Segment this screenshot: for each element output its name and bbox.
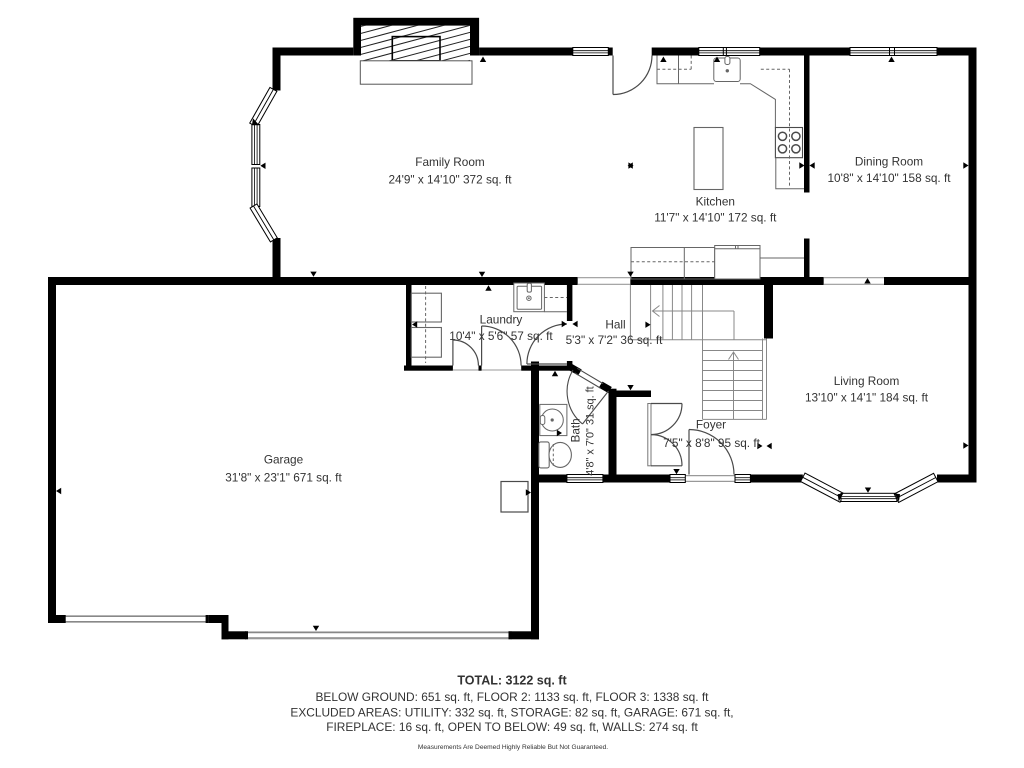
svg-text:5'3" x 7'2" 36 sq. ft: 5'3" x 7'2" 36 sq. ft [566,333,664,347]
svg-text:Hall: Hall [605,318,625,332]
svg-text:Foyer: Foyer [696,418,726,432]
svg-text:13'10" x 14'1" 184 sq. ft: 13'10" x 14'1" 184 sq. ft [805,391,929,405]
svg-text:10'8" x 14'10" 158 sq. ft: 10'8" x 14'10" 158 sq. ft [827,171,951,185]
svg-text:Measurements Are Deemed Highly: Measurements Are Deemed Highly Reliable … [418,744,608,751]
svg-text:24'9" x 14'10" 372 sq. ft: 24'9" x 14'10" 372 sq. ft [388,173,512,187]
svg-text:11'7" x 14'10" 172 sq. ft: 11'7" x 14'10" 172 sq. ft [654,211,777,225]
svg-text:Laundry: Laundry [480,313,523,327]
svg-text:EXCLUDED AREAS: UTILITY: 332 s: EXCLUDED AREAS: UTILITY: 332 sq. ft, STO… [290,705,733,719]
svg-text:TOTAL: 3122 sq. ft: TOTAL: 3122 sq. ft [457,674,567,688]
svg-text:31'8" x 23'1" 671 sq. ft: 31'8" x 23'1" 671 sq. ft [225,470,342,484]
svg-text:Dining Room: Dining Room [855,155,923,169]
svg-text:Kitchen: Kitchen [696,195,735,209]
svg-text:7'5" x 8'8" 95 sq. ft: 7'5" x 8'8" 95 sq. ft [663,436,761,450]
svg-text:4'8" x 7'0" 31 sq. ft: 4'8" x 7'0" 31 sq. ft [585,386,597,475]
svg-text:Living Room: Living Room [834,374,900,388]
svg-text:Bath: Bath [569,418,583,442]
svg-text:10'4" x 5'6" 57 sq. ft: 10'4" x 5'6" 57 sq. ft [449,329,553,343]
svg-text:Family Room: Family Room [415,155,485,169]
svg-text:FIREPLACE: 16 sq. ft, OPEN TO: FIREPLACE: 16 sq. ft, OPEN TO BELOW: 49 … [326,720,698,734]
svg-text:Garage: Garage [264,453,304,467]
svg-text:BELOW GROUND: 651 sq. ft, FLOO: BELOW GROUND: 651 sq. ft, FLOOR 2: 1133 … [316,690,710,704]
